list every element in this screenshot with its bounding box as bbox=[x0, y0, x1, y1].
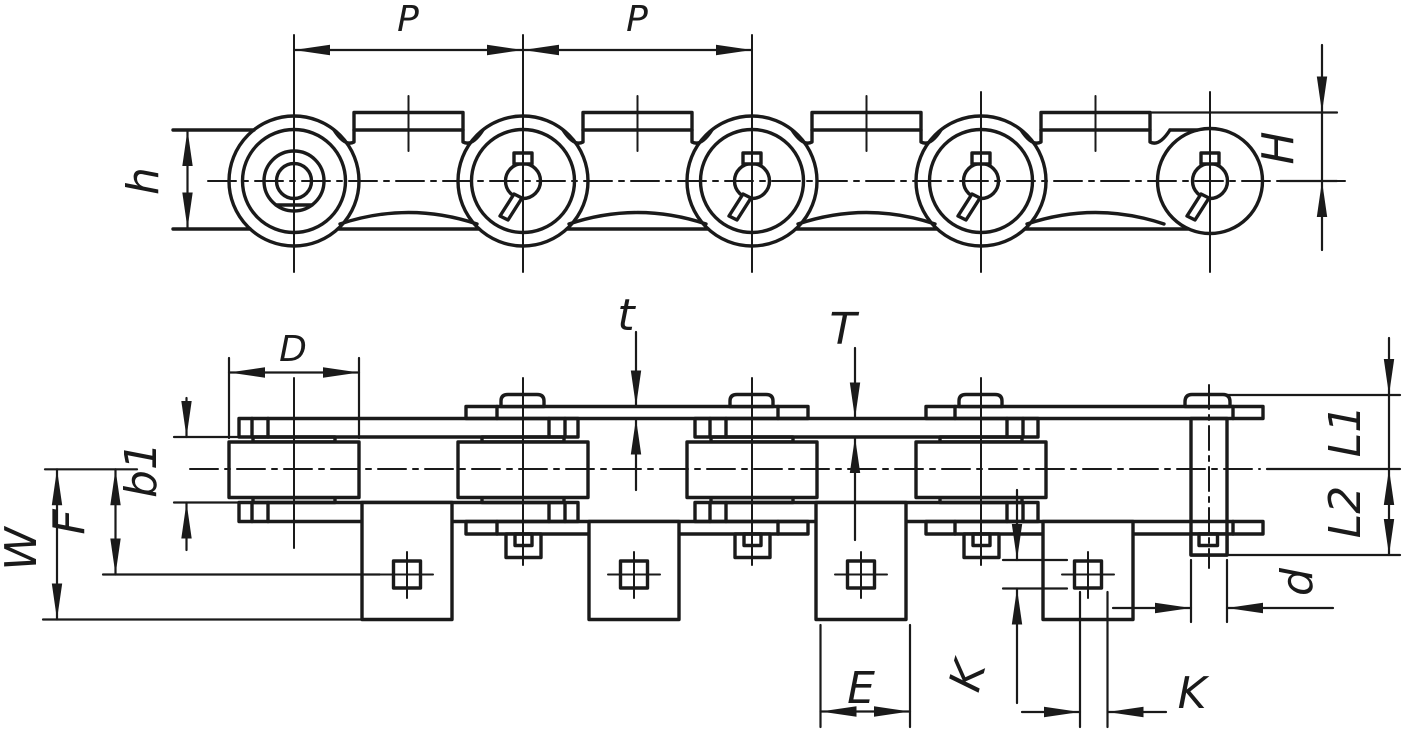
attachment-depth-label: W bbox=[0, 526, 47, 571]
roller-diameter-label: D bbox=[279, 329, 307, 370]
outer-plate-thickness-label: t bbox=[617, 290, 636, 341]
inner-width-label: b1 bbox=[116, 442, 167, 498]
plate-height-label: h bbox=[118, 167, 169, 195]
pitch-right-label: P bbox=[626, 0, 648, 40]
pin-diameter-label: d bbox=[1272, 567, 1323, 596]
chain-technical-drawing: P P h H D t T b1 F W E K K d L1 L2 bbox=[0, 0, 1418, 742]
hole-size-horizontal-label: K bbox=[1178, 668, 1210, 719]
paper-background bbox=[0, 0, 1418, 742]
pin-end-lower-label: L2 bbox=[1320, 486, 1371, 539]
pin-end-upper-label: L1 bbox=[1320, 405, 1371, 458]
drawing-canvas: P P h H D t T b1 F W E K K d L1 L2 bbox=[0, 0, 1418, 742]
pitch-left-label: P bbox=[397, 0, 419, 40]
inner-plate-thickness-label: T bbox=[830, 304, 860, 355]
attachment-height-label: H bbox=[1253, 131, 1304, 164]
tab-width-label: E bbox=[847, 663, 875, 714]
pin-head bbox=[1185, 395, 1230, 407]
hole-offset-label: F bbox=[44, 509, 95, 535]
